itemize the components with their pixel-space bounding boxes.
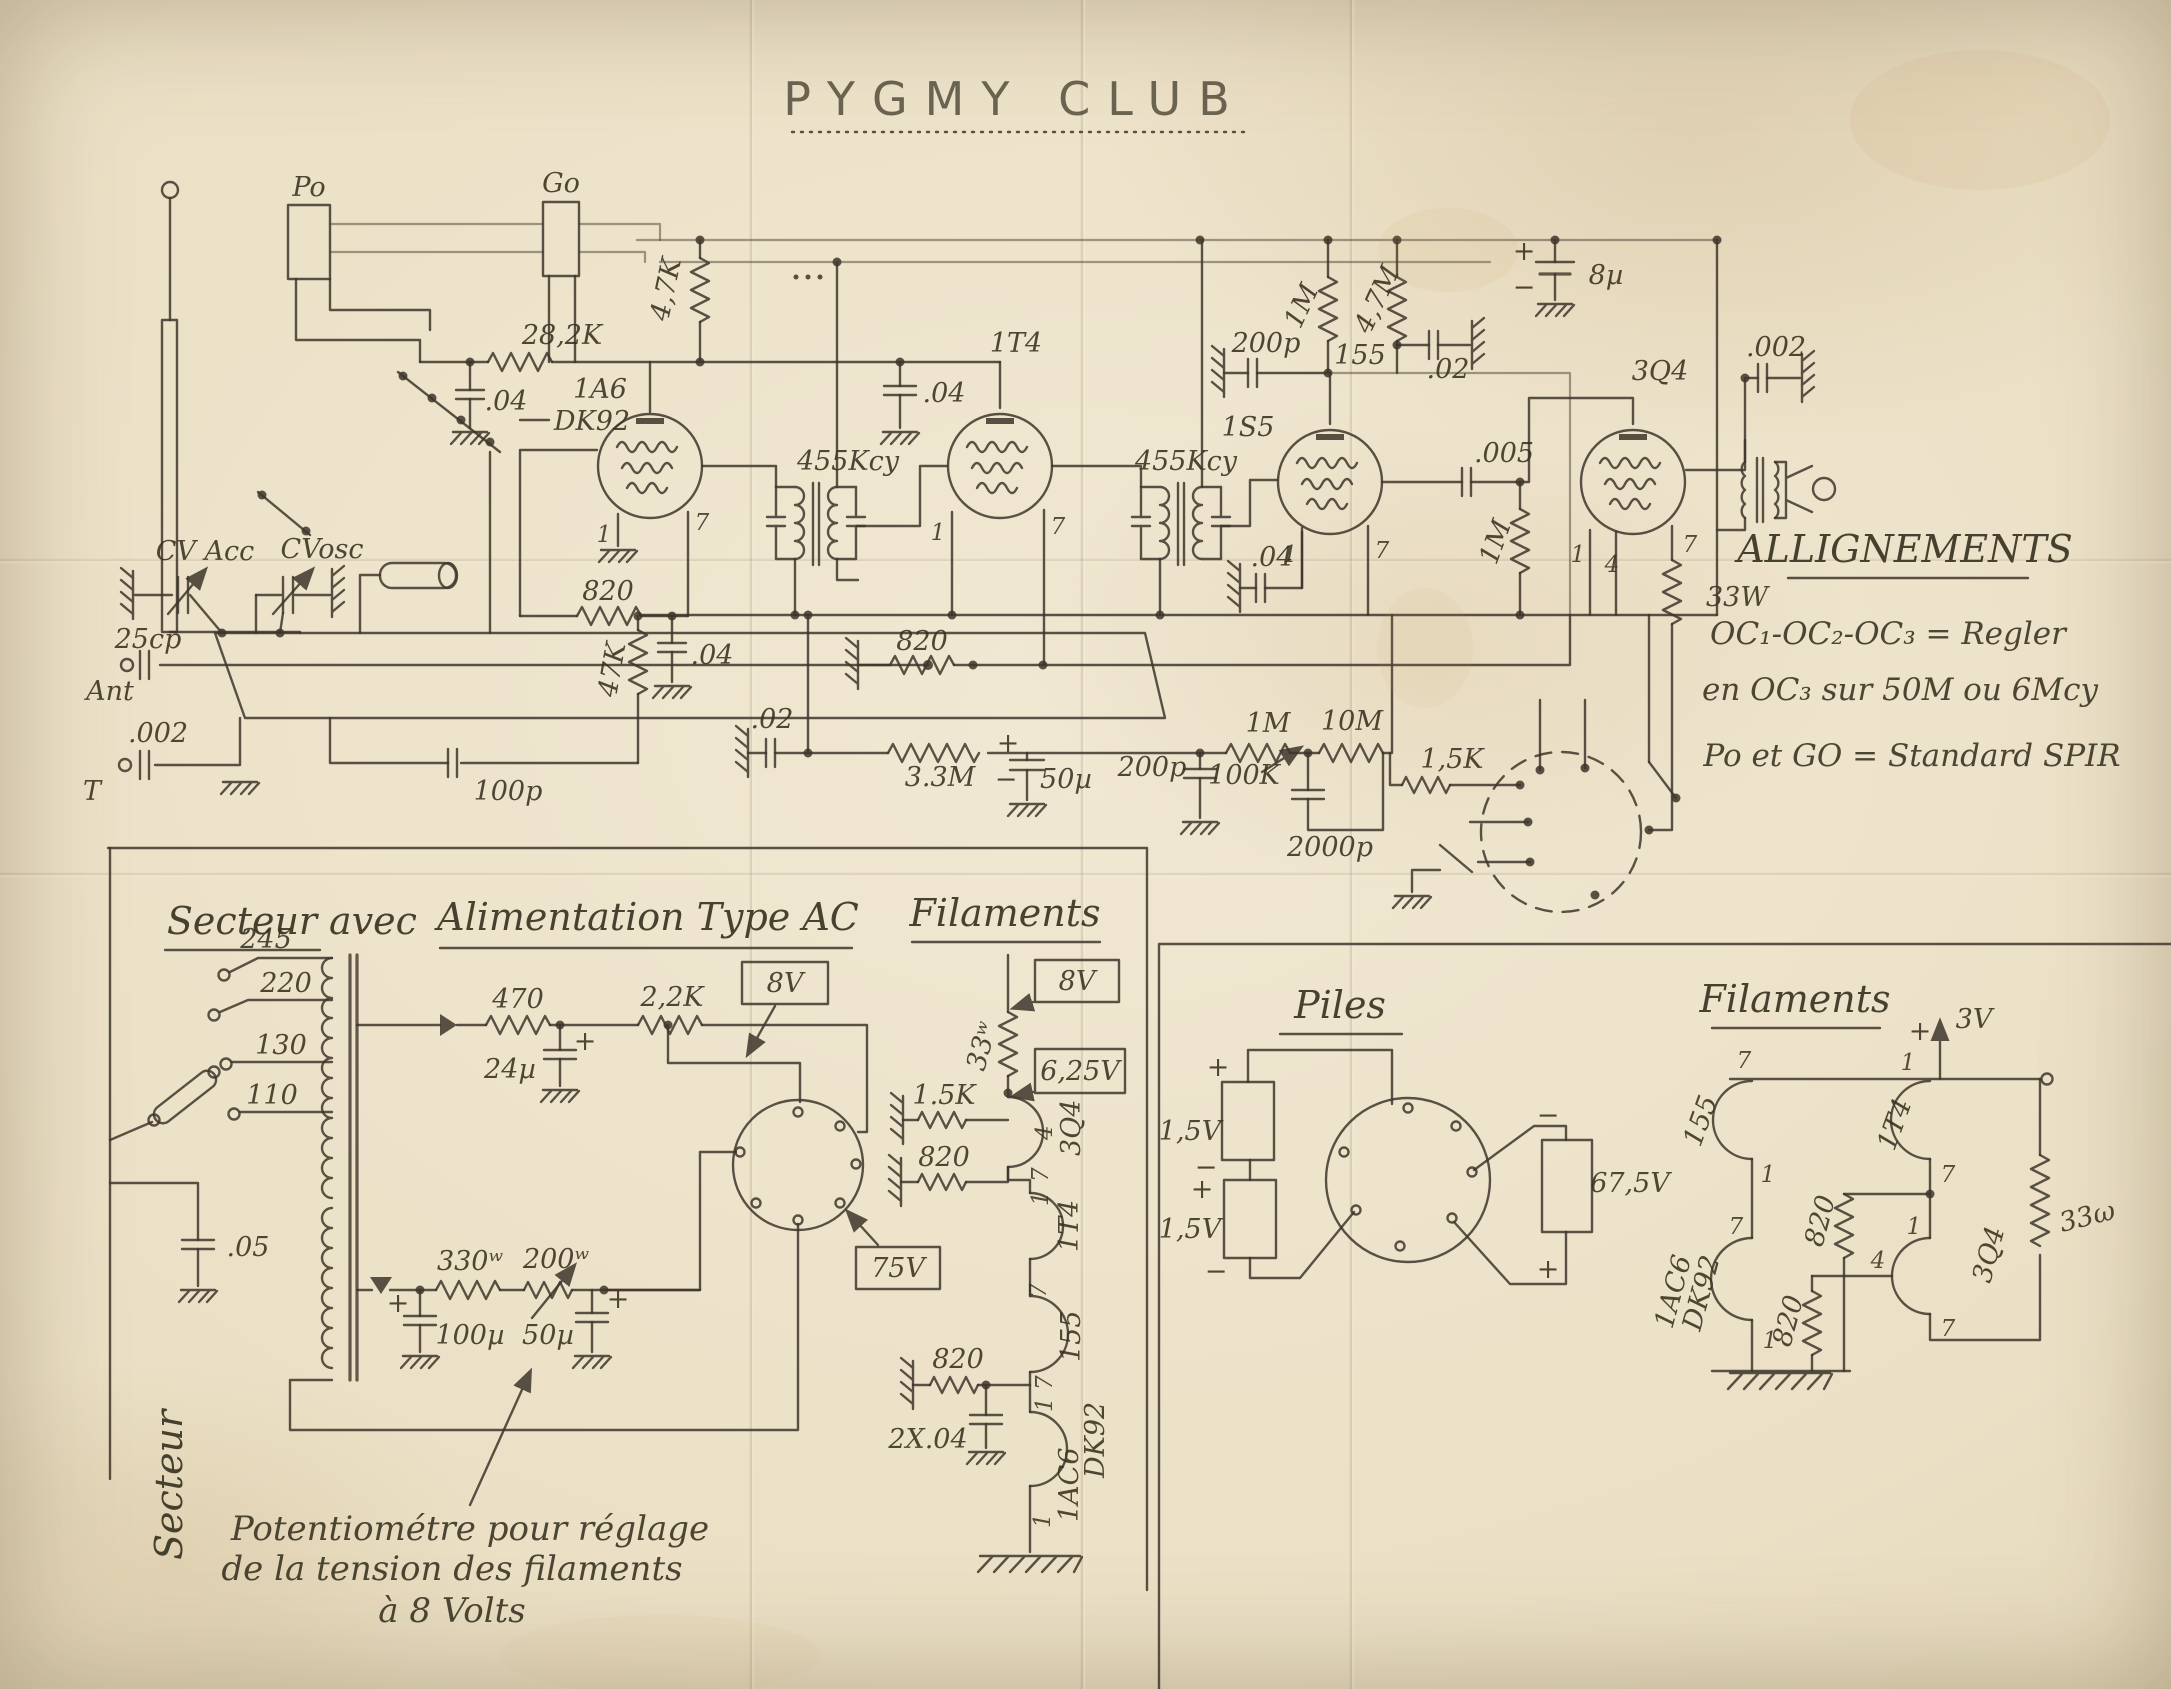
lt-line: 330ʷ 200ʷ + 100µ + 50µ [357,1244,700,1368]
earth-terminal-cap: .002 T [83,718,259,807]
v3-label: 3V [1956,1004,1995,1035]
c-8u-label: 8µ [1589,260,1624,291]
tube-1s5-pin7: 7 [1375,538,1390,564]
volume-network: 1M 10M 100K 2000p [1200,615,1392,863]
r-470-label: 470 [491,984,544,1015]
tube-arc-1ac6-ac: 1AC6 DK92 1 [978,1402,1111,1572]
capacitor-02-det: .02 [1397,318,1484,385]
p7b-batt: 7 [1941,1162,1956,1188]
tube-3q4-label: 3Q4 [1632,356,1689,387]
v75-box: 75V [848,1212,940,1289]
r-820a-ac-label: 820 [918,1142,970,1173]
variable-capacitor-cv-acc: CV Acc [121,536,254,633]
filbat-head: Filaments [1698,977,1890,1021]
resistor-15k-ac: 1.5K [891,1080,1008,1144]
resistor-47k-screen: 4,7K [644,236,709,367]
tube-1a6-pin1: 1 [597,522,612,548]
p7a-batt: 7 [1737,1048,1752,1074]
net155-label: 155 [1334,340,1386,371]
tube-arc-3q4-batt: 3Q4 4 7 [1812,1223,2040,1342]
oscillator-coil [360,563,457,633]
psu-h2: avec [329,899,417,943]
tube-arc-3q4-ac: 4 3Q4 [1008,1097,1087,1167]
v625-label: 6,25V [1040,1056,1122,1087]
b3-plus: + [1537,1254,1560,1285]
mains-transformer: 245 220 130 110 [209,924,358,1380]
capacitor-02-osc: .02 [736,611,888,778]
coil-go-label: Go [542,168,580,199]
tube-3q4: 3Q4 1 4 7 [1571,356,1698,615]
r-47k-label: 47K [592,638,632,700]
t-1t4-batt: 1T4 [1871,1095,1918,1155]
tap-110: 110 [246,1080,298,1111]
c-50u-minus: − [995,764,1018,795]
capacitor-200p-a: 200p [1212,328,1333,397]
t-155-batt: 155 [1677,1091,1724,1150]
r-820b-ac-label: 820 [932,1344,984,1375]
variable-capacitor-cv-osc: CVosc [256,534,363,633]
plus-3v: + 3V [1909,1004,1995,1079]
c-100u-plus: + [387,1288,410,1319]
secteur-label: Secteur [147,1407,191,1560]
tube-3q4-pin4: 4 [1604,552,1620,578]
r-28k-label: 28,2K [521,320,604,351]
r-47k-v-label: 4,7K [644,253,688,324]
align-l2: en OC₃ sur 50M ou 6Mcy [1702,672,2098,708]
pot-200-label: 200ʷ [522,1244,590,1275]
capacitor-200p-b: 200p [1117,749,1219,835]
tap-220: 220 [259,968,312,999]
c-100p-label: 100p [474,776,543,807]
tube-dk92-label: DK92 [553,406,630,437]
tube-arc-155-batt: 7 155 1 [1677,1048,1775,1238]
p4-batt: 4 [1870,1248,1886,1274]
r-33w-label: 33W [1706,582,1770,613]
resistor-820b-batt: 820 [1767,1276,1821,1371]
t-label: T [83,776,103,807]
r-33-batt-label: 33ω [2056,1195,2118,1239]
resistor-820-if: 820 [890,626,954,674]
pin1c-ac: 1 [1032,1397,1058,1412]
p1d-batt: 1 [1907,1214,1922,1240]
c-100u-label: 100µ [435,1320,504,1351]
t-155-ac: 155 [1056,1310,1087,1362]
tube-3q4-pin7: 7 [1683,532,1698,558]
output-002: .002 [1686,332,1814,470]
c-04-osc-label: .04 [691,640,734,671]
b1-label: 1,5V [1159,1116,1224,1147]
psu-border [108,848,1147,1590]
wires-band-links [330,224,660,262]
pin1d-ac: 1 [1030,1513,1056,1528]
pot-note: Potentiométre pour réglage de la tension… [221,1372,709,1631]
c-8u-minus: − [1513,272,1536,303]
align-l1: OC₁-OC₂-OC₃ = Regler [1710,616,2068,652]
v8-box-b: 8V [1014,960,1119,1008]
psu-h4: Filaments [908,891,1100,935]
tube-1s5-pin1: 1 [1283,542,1298,568]
schematic-drawing: PYGMY CLUB Po Go [0,0,2171,1689]
capacitor-04-sg: .04 [451,362,527,444]
c-24u-plus: + [574,1026,597,1057]
r-22k-label: 2,2K [639,982,705,1013]
battery-socket [1326,1098,1490,1262]
ant-cap-label: 25cp [114,624,182,655]
ant-label: Ant [83,676,134,707]
battery-675v: − 67,5V + [1454,1100,1672,1285]
r-10m-label: 10M [1321,706,1384,737]
v625-box: 6,25V [1014,1049,1125,1096]
ground-buses [640,611,1717,690]
note-line1: Potentiométre pour réglage [230,1509,709,1549]
resistor-1m-grid: 1M [1473,482,1529,620]
align-head: ALLIGNEMENTS [1734,527,2073,571]
cv-osc-label: CVosc [281,534,364,565]
b1-plus: + [1207,1052,1230,1083]
resistor-28k: 28,2K [420,320,1000,371]
c-005-label: .005 [1474,438,1534,469]
b3-label: 67,5V [1590,1168,1672,1199]
decorative-dots [794,275,823,280]
resistor-820a-ac: 820 [889,1142,1008,1206]
c-02-det-label: .02 [1427,354,1470,385]
tube-3q4-pin1: 1 [1571,542,1586,568]
tube-1a6-label: 1A6 [573,374,627,405]
resistor-47k-osc: 47K [592,616,647,763]
coil-po: Po [288,172,330,279]
note-line3: à 8 Volts [378,1591,525,1631]
scanned-schematic-page: PYGMY CLUB Po Go [0,0,2171,1689]
resistor-15k-switch: 1,5K [1390,744,1520,793]
alignment-notes: ALLIGNEMENTS OC₁-OC₂-OC₃ = Regler en OC₃… [1702,527,2121,774]
c-002-out-label: .002 [1746,332,1806,363]
capacitor-8u: + − 8µ [1513,236,1624,316]
pin7a-ac: 7 [1028,1167,1054,1182]
c-05-label: .05 [227,1232,270,1263]
filbat-ground [1712,1371,1850,1389]
title-block: PYGMY CLUB [783,72,1248,280]
p7d-batt: 7 [1941,1316,1956,1342]
b2-minus: − [1205,1256,1228,1287]
p7c-batt: 7 [1729,1214,1744,1240]
if2-label: 455Kcy [1134,446,1238,477]
v8-a-label: 8V [767,968,806,999]
tube-1s5: 1S5 1 7 [1222,373,1390,615]
v75-label: 75V [871,1253,927,1284]
pin7c-ac: 7 [1032,1375,1058,1390]
c-200p-b-label: 200p [1117,752,1187,783]
c-04-sg-label: .04 [485,386,528,417]
main-schematic: Po Go [83,168,2121,912]
b2-label: 1,5V [1159,1214,1224,1245]
pin4-ac: 4 [1032,1125,1058,1141]
r-33m-label: 3.3M [905,762,977,793]
p1b-batt: 1 [1901,1050,1916,1076]
chain-jog [1008,1167,1030,1193]
t-3q4-ac: 3Q4 [1056,1100,1087,1157]
r-15k-ac-label: 1.5K [912,1080,977,1111]
c-50u-psu-label: 50µ [522,1320,574,1351]
filaments-battery-section: Filaments + 3V 7 155 1 7 1AC6 DK92 [1649,977,2119,1389]
r-820a-batt-label: 820 [1799,1192,1842,1250]
resistor-820-osc: 820 [520,576,688,625]
align-l3: Po et GO = Standard SPIR [1702,738,2120,774]
c-50u-label: 50µ [1040,764,1092,795]
psu-h3: Alimentation Type AC [434,895,859,939]
psu-section: Secteur avec Alimentation Type AC Filame… [108,848,1147,1631]
cv-acc-label: CV Acc [156,536,254,567]
t-3q4-batt: 3Q4 [1967,1223,2012,1286]
c-50u-plus: + [997,728,1020,759]
tube-1t4-pin1: 1 [931,520,946,546]
r-15k-label: 1,5K [1420,744,1485,775]
switch-contacts [258,372,495,536]
c-2000p-label: 2000p [1286,832,1373,863]
resistor-820b-ac: 820 2X.04 [887,1344,1030,1464]
note-line2: de la tension des filaments [221,1549,682,1589]
piles-head: Piles [1293,983,1386,1027]
resistor-33-batt: 33ω [2031,1079,2118,1246]
b2-plus: + [1191,1174,1214,1205]
capacitor-04-osc: .04 [653,616,733,698]
if1-label: 455Kcy [796,446,900,477]
coil-po-label: Po [291,172,325,203]
tube-1a6-pin7: 7 [695,510,710,536]
pot-100k-label: 100K [1208,760,1282,791]
r-820-if-label: 820 [896,626,948,657]
capacitor-100p: 100p [330,718,638,807]
coil-go: Go [542,168,580,276]
c-04-1t4-label: .04 [923,378,966,409]
tap-130: 130 [255,1030,307,1061]
v3-plus: + [1909,1016,1932,1047]
r-330-label: 330ʷ [437,1246,504,1277]
c-2x04-label: 2X.04 [887,1424,967,1455]
c-02-osc-label: .02 [751,704,794,735]
tap-245: 245 [239,924,292,955]
tube-1s5-label: 1S5 [1222,412,1275,443]
b3-minus: − [1537,1100,1560,1131]
supply-rails [637,236,1722,263]
c-200p-a-label: 200p [1231,328,1301,359]
tube-arc-155-ac: 155 7 1 [1030,1296,1087,1412]
t-dk92-ac: DK92 [1080,1402,1111,1479]
r-1m-a-label: 1M [1278,278,1326,333]
tube-1t4-pin7: 7 [1051,514,1066,540]
page-title: PYGMY CLUB [783,72,1247,126]
p1a-batt: 1 [1761,1162,1776,1188]
v8-b-label: 8V [1059,966,1098,997]
tube-1t4-label: 1T4 [990,328,1042,359]
c-24u-label: 24µ [483,1054,536,1085]
if-transformer-1: 455Kcy [702,258,947,616]
tube-arc-1ac6-batt: 7 1AC6 DK92 1 [1649,1214,1778,1371]
capacitor-04-1t4: .04 [881,358,965,445]
battery-15v-b: + 1,5V − [1159,1160,1354,1287]
r-33-ac-label: 33ʷ [961,1018,1004,1074]
r-820-osc-label: 820 [582,576,634,607]
tube-arc-1t4-ac: 1T4 7 [1026,1193,1085,1298]
c-50u-psu-plus: + [607,1284,630,1315]
v8-box-a: 8V [742,962,828,1054]
r-1m-vol-label: 1M [1246,708,1292,739]
t-1t4-ac: 1T4 [1054,1200,1085,1252]
t-cap-label: .002 [128,718,188,749]
